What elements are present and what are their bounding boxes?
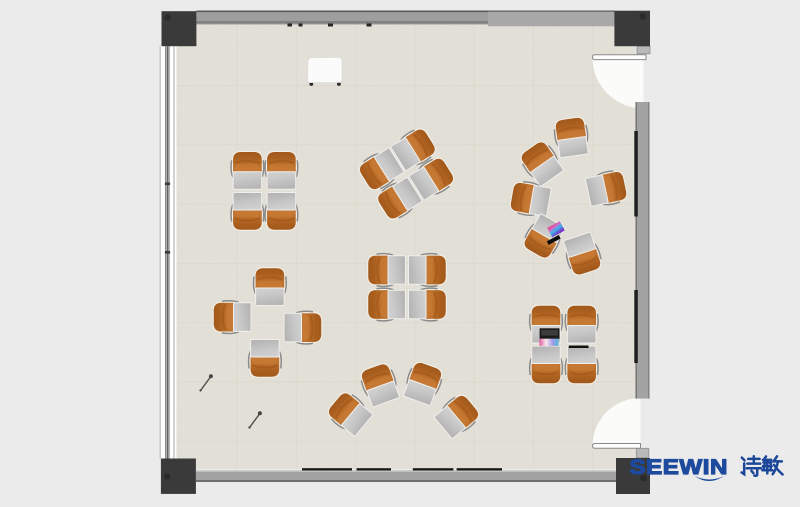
svg-text:SEEWIN: SEEWIN — [630, 455, 729, 479]
